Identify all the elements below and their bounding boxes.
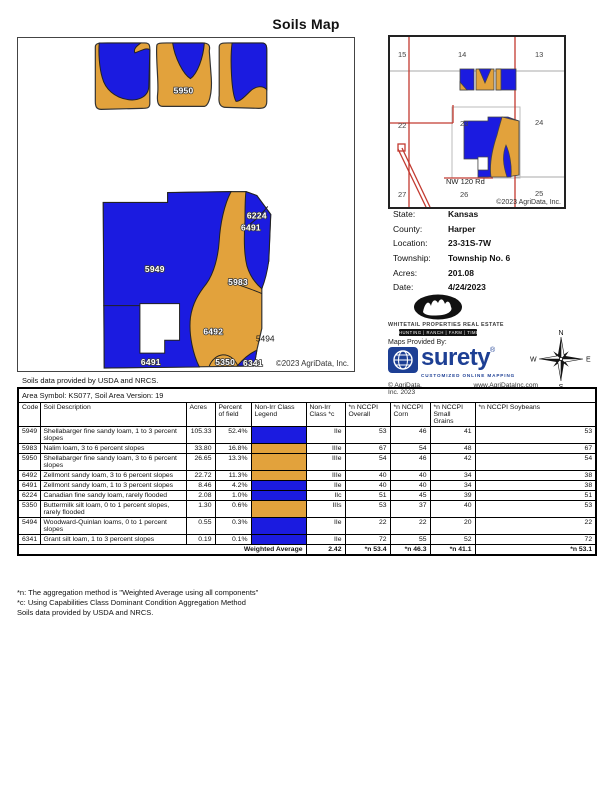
cell-description: Shellabarger fine sandy loam, 3 to 6 per… xyxy=(40,454,186,471)
cell-legend-swatch xyxy=(251,535,306,545)
soils-table: Area Symbol: KS077, Soil Area Version: 1… xyxy=(17,387,597,556)
soils-data-note: Soils data provided by USDA and NRCS. xyxy=(22,376,158,385)
cell-nccpi-small-grains: 20 xyxy=(430,518,475,535)
cell-nccpi-overall: 40 xyxy=(345,481,390,491)
info-label: Acres: xyxy=(393,268,448,278)
cell-description: Canadian fine sandy loam, rarely flooded xyxy=(40,491,186,501)
cell-acres: 33.80 xyxy=(186,444,215,454)
soils-map-drawing: 5950 5949 5983 6492 6224 6491 5494 6491 … xyxy=(18,38,353,370)
footnotes: *n: The aggregation method is "Weighted … xyxy=(17,588,258,618)
cell-nccpi-overall: 40 xyxy=(345,471,390,481)
soil-label: 5949 xyxy=(145,264,165,274)
cell-nccpi-overall: 53 xyxy=(345,427,390,444)
cell-description: Buttermilk silt loam, 0 to 1 percent slo… xyxy=(40,501,186,518)
cell-nccpi-corn: 40 xyxy=(390,471,430,481)
cell-nccpi-corn: 46 xyxy=(390,427,430,444)
soils-map-canvas: 5950 5949 5983 6492 6224 6491 5494 6491 … xyxy=(17,37,355,372)
cell-legend-swatch xyxy=(251,501,306,518)
cell-code: 6341 xyxy=(18,535,40,545)
cell-nccpi-corn: 54 xyxy=(390,444,430,454)
cell-code: 6224 xyxy=(18,491,40,501)
cell-nccpi-corn: 45 xyxy=(390,491,430,501)
soils-data-table: Area Symbol: KS077, Soil Area Version: 1… xyxy=(17,387,597,556)
cell-nccpi-overall: 72 xyxy=(345,535,390,545)
col-header-legend: Non-Irr Class Legend xyxy=(251,403,306,427)
soil-label: 6491 xyxy=(141,357,161,367)
soil-label: 6492 xyxy=(203,326,223,336)
cell-acres: 1.30 xyxy=(186,501,215,518)
cell-percent: 1.0% xyxy=(215,491,251,501)
cell-acres: 0.19 xyxy=(186,535,215,545)
cell-nccpi-small-grains: 34 xyxy=(430,481,475,491)
cell-nccpi-overall: 54 xyxy=(345,454,390,471)
cell-class: IIIs xyxy=(306,501,345,518)
soil-row: 5950 Shellabarger fine sandy loam, 3 to … xyxy=(18,454,596,471)
cell-nccpi-corn: 37 xyxy=(390,501,430,518)
soil-row: 6224 Canadian fine sandy loam, rarely fl… xyxy=(18,491,596,501)
info-row: Township: Township No. 6 xyxy=(393,251,573,266)
cell-nccpi-soybeans: 54 xyxy=(475,454,596,471)
locator-map: 15 14 13 22 23 24 27 26 25 NW 120 Rd ©20… xyxy=(388,35,566,209)
soil-row: 5949 Shellabarger fine sandy loam, 1 to … xyxy=(18,427,596,444)
col-header-nccpi-corn: *n NCCPI Corn xyxy=(390,403,430,427)
soil-row: 5983 Nalim loam, 3 to 6 percent slopes 3… xyxy=(18,444,596,454)
whitetail-logo: Whitetail Properties Real Estate HUNTING… xyxy=(388,293,488,336)
cell-description: Shellabarger fine sandy loam, 1 to 3 per… xyxy=(40,427,186,444)
cell-description: Zellmont sandy loam, 1 to 3 percent slop… xyxy=(40,481,186,491)
globe-icon xyxy=(388,347,418,373)
soil-row: 6491 Zellmont sandy loam, 1 to 3 percent… xyxy=(18,481,596,491)
cell-legend-swatch xyxy=(251,471,306,481)
cell-code: 5950 xyxy=(18,454,40,471)
cell-nccpi-overall: 53 xyxy=(345,501,390,518)
cell-description: Grant silt loam, 1 to 3 percent slopes xyxy=(40,535,186,545)
cell-class: IIe xyxy=(306,518,345,535)
section-number: 27 xyxy=(398,190,406,199)
cell-acres: 2.08 xyxy=(186,491,215,501)
section-number: 13 xyxy=(535,50,543,59)
cell-legend-swatch xyxy=(251,427,306,444)
cell-nccpi-soybeans: 22 xyxy=(475,518,596,535)
col-header-nccpi-soybeans: *n NCCPI Soybeans xyxy=(475,403,596,427)
cell-class: IIc xyxy=(306,491,345,501)
surety-tagline: CUSTOMIZED ONLINE MAPPING xyxy=(421,373,538,378)
col-header-percent: Percent of field xyxy=(215,403,251,427)
table-header-row: Code Soil Description Acres Percent of f… xyxy=(18,403,596,427)
cell-percent: 52.4% xyxy=(215,427,251,444)
soil-row: 6492 Zellmont sandy loam, 3 to 6 percent… xyxy=(18,471,596,481)
cell-nccpi-small-grains: 40 xyxy=(430,501,475,518)
soil-label: 5350 xyxy=(215,357,235,367)
cell-description: Nalim loam, 3 to 6 percent slopes xyxy=(40,444,186,454)
cell-percent: 0.1% xyxy=(215,535,251,545)
area-symbol: Area Symbol: KS077, Soil Area Version: 1… xyxy=(18,388,596,403)
info-label: Location: xyxy=(393,238,448,248)
footnote-line: *n: The aggregation method is "Weighted … xyxy=(17,588,258,598)
cell-nccpi-small-grains: 42 xyxy=(430,454,475,471)
info-label: County: xyxy=(393,224,448,234)
cell-nccpi-soybeans: 51 xyxy=(475,491,596,501)
col-header-nccpi-overall: *n NCCPI Overall xyxy=(345,403,390,427)
property-info: State: Kansas County: Harper Location: 2… xyxy=(393,207,573,295)
locator-soils-main xyxy=(464,117,519,177)
cell-nccpi-small-grains: 48 xyxy=(430,444,475,454)
col-header-acres: Acres xyxy=(186,403,215,427)
section-number: 22 xyxy=(398,121,406,130)
section-number: 25 xyxy=(535,189,543,198)
cell-legend-swatch xyxy=(251,454,306,471)
cell-nccpi-corn: 46 xyxy=(390,454,430,471)
soil-row: 5494 Woodward-Quinlan loams, 0 to 1 perc… xyxy=(18,518,596,535)
section-number: 26 xyxy=(460,190,468,199)
cell-nccpi-small-grains: 52 xyxy=(430,535,475,545)
cell-legend-swatch xyxy=(251,444,306,454)
cell-code: 5983 xyxy=(18,444,40,454)
cell-description: Zellmont sandy loam, 3 to 6 percent slop… xyxy=(40,471,186,481)
info-row: Acres: 201.08 xyxy=(393,265,573,280)
cell-nccpi-small-grains: 34 xyxy=(430,471,475,481)
compass-n: N xyxy=(558,330,563,337)
cell-percent: 4.2% xyxy=(215,481,251,491)
cell-class: IIe xyxy=(306,535,345,545)
soil-row: 5350 Buttermilk silt loam, 0 to 1 percen… xyxy=(18,501,596,518)
section-number: 23 xyxy=(460,119,468,128)
cell-nccpi-overall: 67 xyxy=(345,444,390,454)
info-row: Location: 23-31S-7W xyxy=(393,236,573,251)
registered-mark: ® xyxy=(490,347,495,354)
info-label: State: xyxy=(393,209,448,219)
col-header-nccpi-small-grains: *n NCCPI Small Grains xyxy=(430,403,475,427)
footnote-line: Soils data provided by USDA and NRCS. xyxy=(17,608,258,618)
cell-code: 5350 xyxy=(18,501,40,518)
info-label: Township: xyxy=(393,253,448,263)
info-row: County: Harper xyxy=(393,222,573,237)
soil-label: 5983 xyxy=(228,277,248,287)
cell-nccpi-overall: 22 xyxy=(345,518,390,535)
parcel-northwest xyxy=(95,43,150,109)
cell-acres: 105.33 xyxy=(186,427,215,444)
cell-class: IIIe xyxy=(306,471,345,481)
soil-label: 6224 xyxy=(247,210,267,220)
wavg-soybeans: *n 53.1 xyxy=(475,545,596,556)
compass-rose-icon: N S E W xyxy=(529,327,593,391)
cell-acres: 22.72 xyxy=(186,471,215,481)
cell-code: 6492 xyxy=(18,471,40,481)
locator-map-drawing: 15 14 13 22 23 24 27 26 25 NW 120 Rd ©20… xyxy=(390,37,564,207)
whitetail-name: Whitetail Properties Real Estate xyxy=(388,322,488,328)
compass-e: E xyxy=(586,357,591,364)
cell-acres: 0.55 xyxy=(186,518,215,535)
whitetail-tagline: HUNTING | RANCH | FARM | TIMBER xyxy=(399,329,477,336)
info-value: Harper xyxy=(448,224,475,234)
wavg-overall: *n 53.4 xyxy=(345,545,390,556)
info-value: 23-31S-7W xyxy=(448,238,491,248)
cell-nccpi-overall: 51 xyxy=(345,491,390,501)
section-number: 15 xyxy=(398,50,406,59)
cell-nccpi-soybeans: 67 xyxy=(475,444,596,454)
locator-copyright: ©2023 AgriData, Inc. xyxy=(496,198,561,206)
cell-legend-swatch xyxy=(251,491,306,501)
wavg-small-grains: *n 41.1 xyxy=(430,545,475,556)
soil-label: 5950 xyxy=(174,85,194,95)
cell-nccpi-soybeans: 53 xyxy=(475,501,596,518)
locator-soils-north xyxy=(460,69,516,90)
soil-row: 6341 Grant silt loam, 1 to 3 percent slo… xyxy=(18,535,596,545)
surety-wordmark: surety xyxy=(421,344,490,371)
info-value: 201.08 xyxy=(448,268,474,278)
cell-nccpi-soybeans: 53 xyxy=(475,427,596,444)
info-row: State: Kansas xyxy=(393,207,573,222)
info-label: Date: xyxy=(393,282,448,292)
cell-class: IIe xyxy=(306,427,345,444)
cell-nccpi-soybeans: 38 xyxy=(475,471,596,481)
cell-acres: 26.65 xyxy=(186,454,215,471)
wavg-class: 2.42 xyxy=(306,545,345,556)
col-header-class: Non-Irr Class *c xyxy=(306,403,345,427)
soil-label: 6341 xyxy=(243,358,263,368)
cell-class: IIe xyxy=(306,481,345,491)
cell-nccpi-small-grains: 41 xyxy=(430,427,475,444)
weighted-average-row: Weighted Average 2.42 *n 53.4 *n 46.3 *n… xyxy=(18,545,596,556)
cell-legend-swatch xyxy=(251,518,306,535)
info-value: 4/24/2023 xyxy=(448,282,486,292)
map-copyright: ©2023 AgriData, Inc. xyxy=(276,359,349,368)
weighted-average-label: Weighted Average xyxy=(18,545,306,556)
soils-map-report-page: { "title": "Soils Map", "colors": { "soi… xyxy=(0,0,612,792)
parcel-north-middle xyxy=(157,43,212,106)
cell-nccpi-corn: 40 xyxy=(390,481,430,491)
whitetail-antler-icon xyxy=(412,293,464,321)
col-header-description: Soil Description xyxy=(40,403,186,427)
cell-code: 5494 xyxy=(18,518,40,535)
area-symbol-row: Area Symbol: KS077, Soil Area Version: 1… xyxy=(18,388,596,403)
soil-label: 6491 xyxy=(241,222,261,232)
cell-legend-swatch xyxy=(251,481,306,491)
info-value: Kansas xyxy=(448,209,478,219)
compass-w: W xyxy=(530,357,537,364)
soil-label: 5494 xyxy=(256,333,275,343)
cell-code: 6491 xyxy=(18,481,40,491)
cell-code: 5949 xyxy=(18,427,40,444)
cell-nccpi-small-grains: 39 xyxy=(430,491,475,501)
cell-percent: 11.3% xyxy=(215,471,251,481)
cell-nccpi-soybeans: 72 xyxy=(475,535,596,545)
section-number: 14 xyxy=(458,50,466,59)
page-title: Soils Map xyxy=(0,16,612,32)
cell-nccpi-corn: 55 xyxy=(390,535,430,545)
cell-percent: 16.8% xyxy=(215,444,251,454)
cell-percent: 0.6% xyxy=(215,501,251,518)
cell-acres: 8.46 xyxy=(186,481,215,491)
road-label: NW 120 Rd xyxy=(446,177,485,186)
info-value: Township No. 6 xyxy=(448,253,510,263)
footnote-line: *c: Using Capabilities Class Dominant Co… xyxy=(17,598,258,608)
cell-class: IIIe xyxy=(306,444,345,454)
cell-class: IIIe xyxy=(306,454,345,471)
parcel-northeast xyxy=(219,43,267,108)
cell-nccpi-soybeans: 38 xyxy=(475,481,596,491)
cell-percent: 0.3% xyxy=(215,518,251,535)
section-number: 24 xyxy=(535,118,543,127)
col-header-code: Code xyxy=(18,403,40,427)
cell-percent: 13.3% xyxy=(215,454,251,471)
cell-nccpi-corn: 22 xyxy=(390,518,430,535)
cell-description: Woodward-Quinlan loams, 0 to 1 percent s… xyxy=(40,518,186,535)
wavg-corn: *n 46.3 xyxy=(390,545,430,556)
